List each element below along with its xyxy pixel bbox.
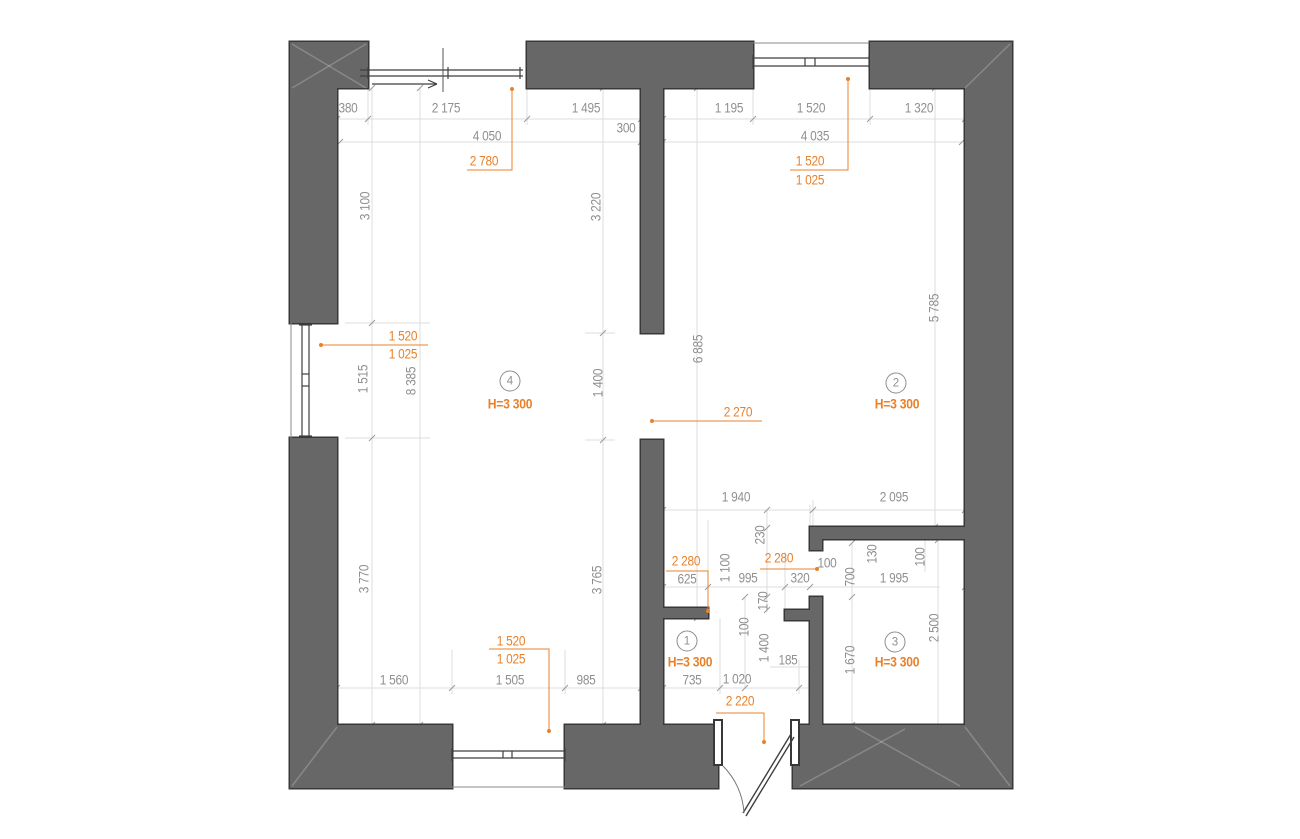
leader-line: [716, 713, 764, 740]
leader-dot: [815, 567, 819, 571]
leader-line: [489, 649, 549, 729]
leader-dot: [846, 77, 850, 81]
room3-left-wall: [810, 597, 822, 725]
leader-dot: [706, 609, 710, 613]
entrance-door-swing-arc: [723, 766, 744, 813]
central-wall-upper: [641, 88, 663, 333]
leader-dot: [650, 419, 654, 423]
bottom-wall-right: [793, 725, 1012, 788]
leader-line: [666, 571, 708, 610]
floor-plan: 3802 1751 4953004 0501 1951 5201 3204 03…: [0, 0, 1300, 839]
entrance-door-jamb: [791, 720, 799, 765]
bottom-wall-mid: [565, 725, 718, 788]
leader-dot: [510, 87, 514, 91]
entrance-door-leaf: [746, 737, 794, 816]
top-wall-mid: [527, 42, 753, 88]
leader-line: [790, 79, 848, 170]
leader-dot: [547, 729, 551, 733]
floor-plan-canvas: [0, 0, 1300, 839]
entrance-door-leaf: [743, 734, 791, 813]
right-wall: [965, 42, 1012, 788]
leader-dot: [319, 343, 323, 347]
entrance-door-jamb: [714, 720, 722, 765]
hall-wall-stub: [663, 608, 708, 618]
leader-dot: [762, 740, 766, 744]
room3-top-leg: [810, 527, 822, 550]
room3-top-wall: [810, 527, 965, 539]
central-wall-lower: [641, 440, 663, 725]
room3-left-stub: [785, 610, 810, 620]
leader-line: [467, 89, 512, 170]
